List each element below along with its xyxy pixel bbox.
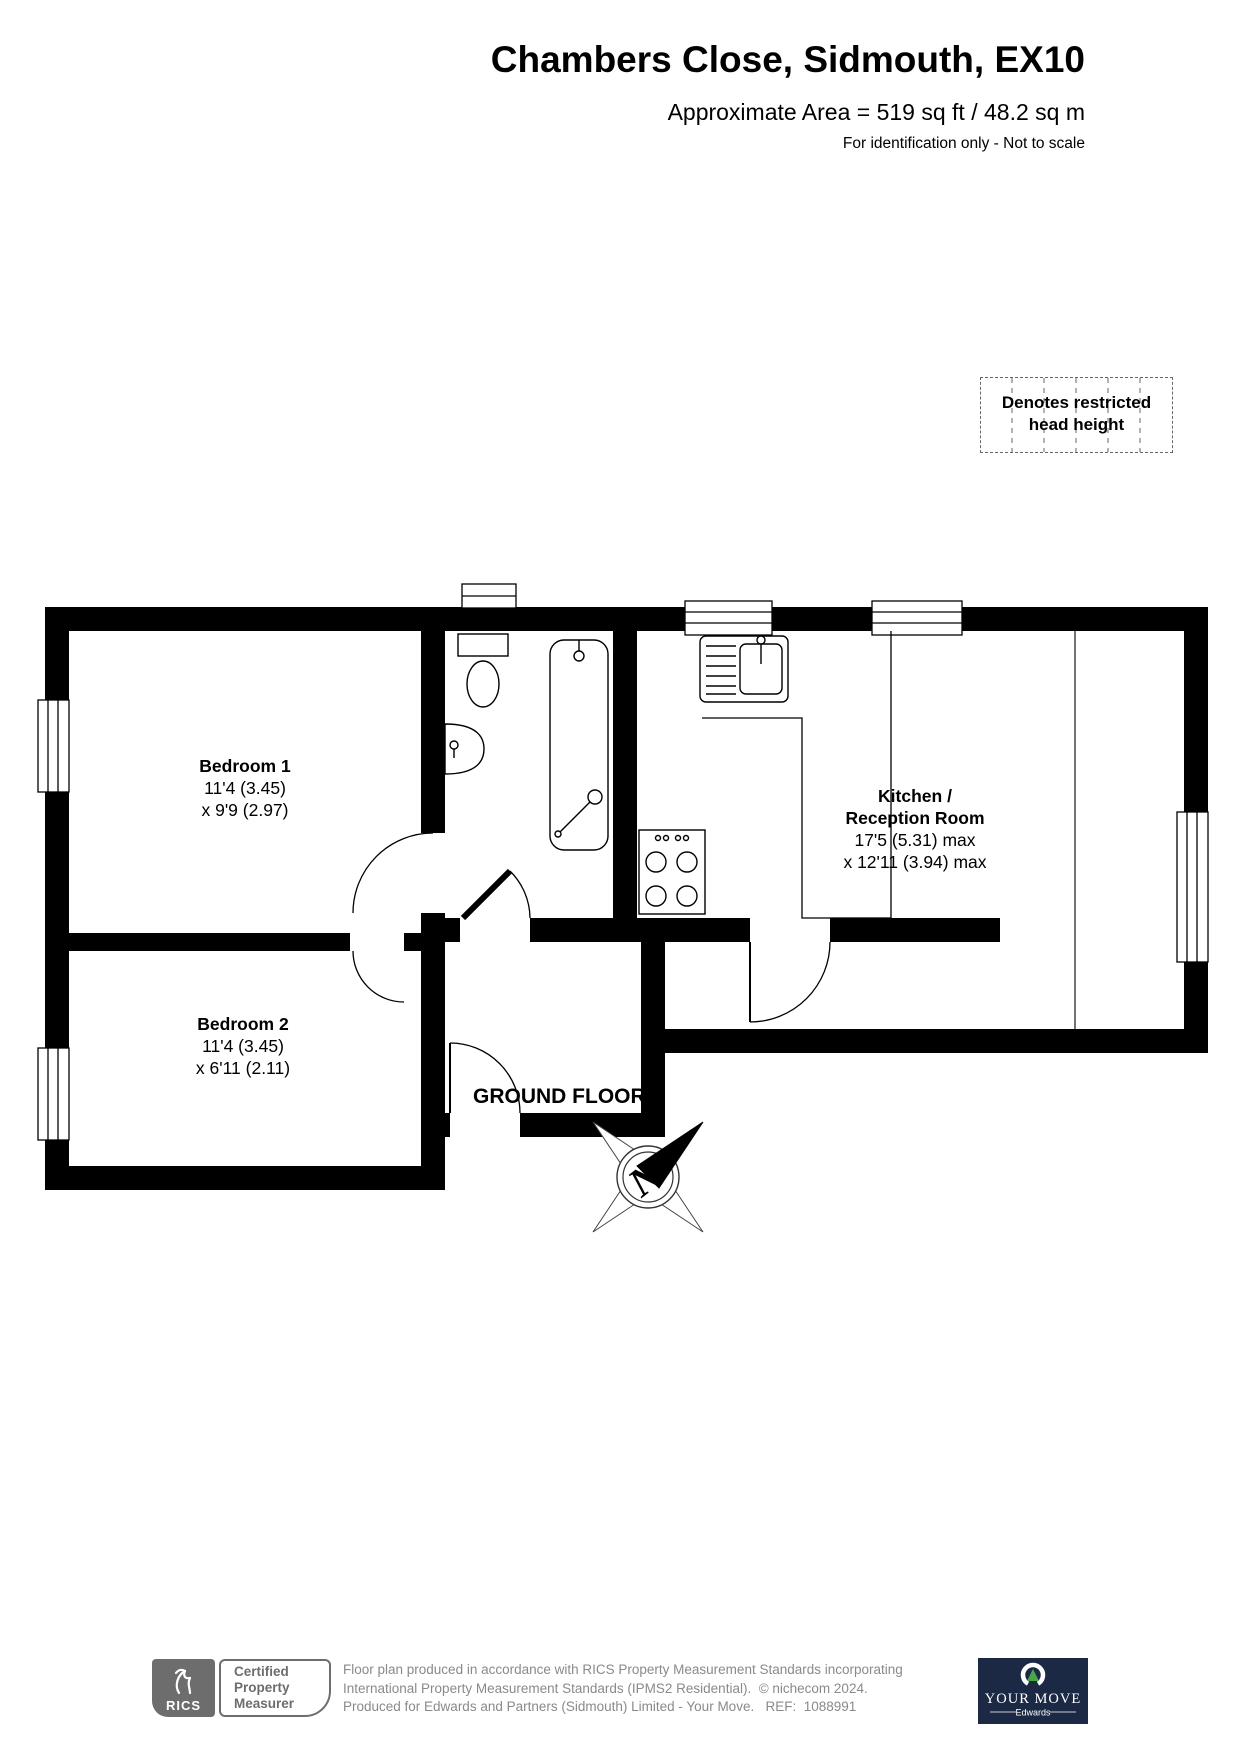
kitchen-fixtures (639, 631, 891, 918)
hob-icon (639, 830, 705, 914)
bedroom1-name: Bedroom 1 (199, 756, 291, 776)
badge-line-1: Certified (234, 1664, 329, 1680)
disclaimer-line-3: Produced for Edwards and Partners (Sidmo… (343, 1698, 968, 1717)
window-kitchen-top-2 (872, 601, 962, 635)
window-bedroom1 (38, 700, 69, 792)
bathtub-icon (550, 640, 608, 850)
wall-kitchen-bottom (641, 1029, 1208, 1053)
your-move-brand: YOUR MOVE (985, 1691, 1081, 1707)
rics-lion-emblem (152, 1659, 215, 1699)
wall-exterior-right-upper (1184, 607, 1208, 812)
kitchen-dims2: x 12'11 (3.94) max (843, 852, 986, 872)
window-kitchen-top-1 (685, 601, 772, 635)
floor-label: GROUND FLOOR (473, 1085, 646, 1108)
kitchen-dims1: 17'5 (5.31) max (854, 830, 975, 850)
wall-bathroom-bottom-stub (445, 918, 460, 942)
disclaimer-text: Floor plan produced in accordance with R… (343, 1661, 968, 1717)
door-kitchen (750, 942, 830, 1022)
wall-bedrooms-right-upper (421, 631, 445, 833)
disclaimer-line-1: Floor plan produced in accordance with R… (343, 1661, 968, 1680)
your-move-logo-art: YOUR MOVE Edwards (978, 1658, 1088, 1724)
wall-bedroom2-bottom (45, 1166, 445, 1190)
toilet-icon (458, 634, 508, 707)
basin-icon (445, 724, 484, 774)
window-bedroom2 (38, 1048, 69, 1140)
bedroom2-dims1: 11'4 (3.45) (202, 1036, 284, 1056)
wall-hall-kitchen (530, 918, 750, 942)
kitchen-name2: Reception Room (845, 808, 984, 828)
wall-bedroom-divider (69, 933, 350, 951)
bathroom-fixtures (445, 634, 608, 850)
your-move-logo: YOUR MOVE Edwards (978, 1658, 1088, 1724)
wall-vestibule-bottom-left (421, 1113, 450, 1137)
badge-line-2: Property (234, 1680, 329, 1696)
your-move-sub-brand: Edwards (1015, 1708, 1051, 1718)
door-arc-bedroom1 (353, 833, 433, 913)
bedroom2-name: Bedroom 2 (197, 1014, 289, 1034)
bedroom2-dims2: x 6'11 (2.11) (196, 1058, 290, 1078)
window-kitchen-right (1177, 812, 1208, 962)
wall-vestibule-bottom-right (520, 1113, 665, 1137)
door-bathroom (463, 871, 530, 918)
wall-bedroom-divider-stub (404, 933, 445, 951)
floor-plan: Bedroom 1 11'4 (3.45) x 9'9 (2.97) Bedro… (0, 0, 1241, 1755)
disclaimer-line-2: International Property Measurement Stand… (343, 1680, 968, 1699)
logo-house-triangle-icon (1027, 1669, 1039, 1681)
badge-line-3: Measurer (234, 1696, 329, 1712)
kitchen-name1: Kitchen / (878, 786, 952, 806)
bedroom1-dims2: x 9'9 (2.97) (202, 800, 289, 820)
door-arc-bedroom2 (353, 951, 404, 1002)
bedroom1-dims1: 11'4 (3.45) (204, 778, 286, 798)
window-bathroom-vent (462, 584, 516, 608)
wall-hall-kitchen-right (830, 918, 1000, 942)
compass-rose: N (593, 1122, 703, 1232)
wall-bedrooms-right-lower (421, 951, 445, 1190)
sink-unit-icon (700, 636, 788, 702)
wall-exterior-right-lower (1184, 962, 1208, 1053)
certified-measurer-badge: Certified Property Measurer (219, 1659, 331, 1717)
wall-bedrooms-right-mid (421, 913, 445, 933)
rics-brand-text: RICS (152, 1698, 215, 1713)
wall-bathroom-right (613, 607, 637, 942)
rics-logo: RICS (152, 1659, 215, 1717)
